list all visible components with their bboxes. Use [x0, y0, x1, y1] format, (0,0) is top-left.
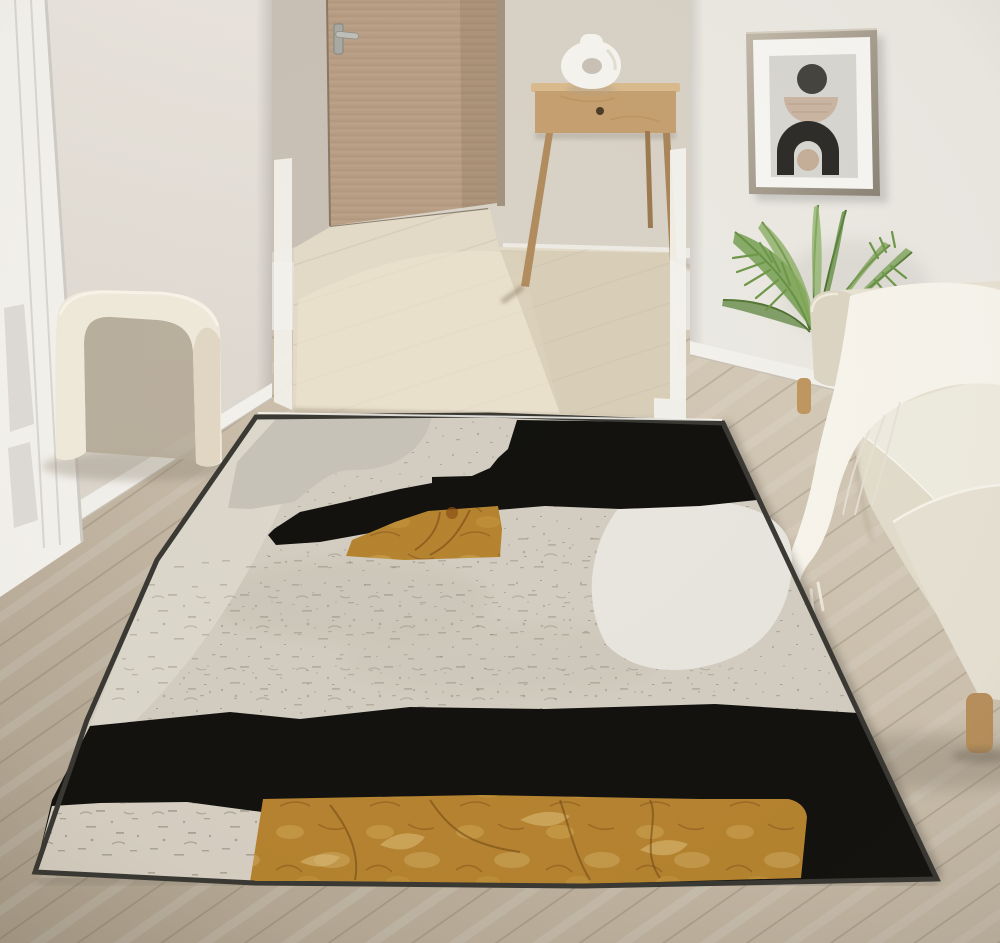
room-scene — [0, 0, 1000, 943]
living-room-photo — [0, 0, 1000, 943]
vignette-overlay — [0, 0, 1000, 943]
